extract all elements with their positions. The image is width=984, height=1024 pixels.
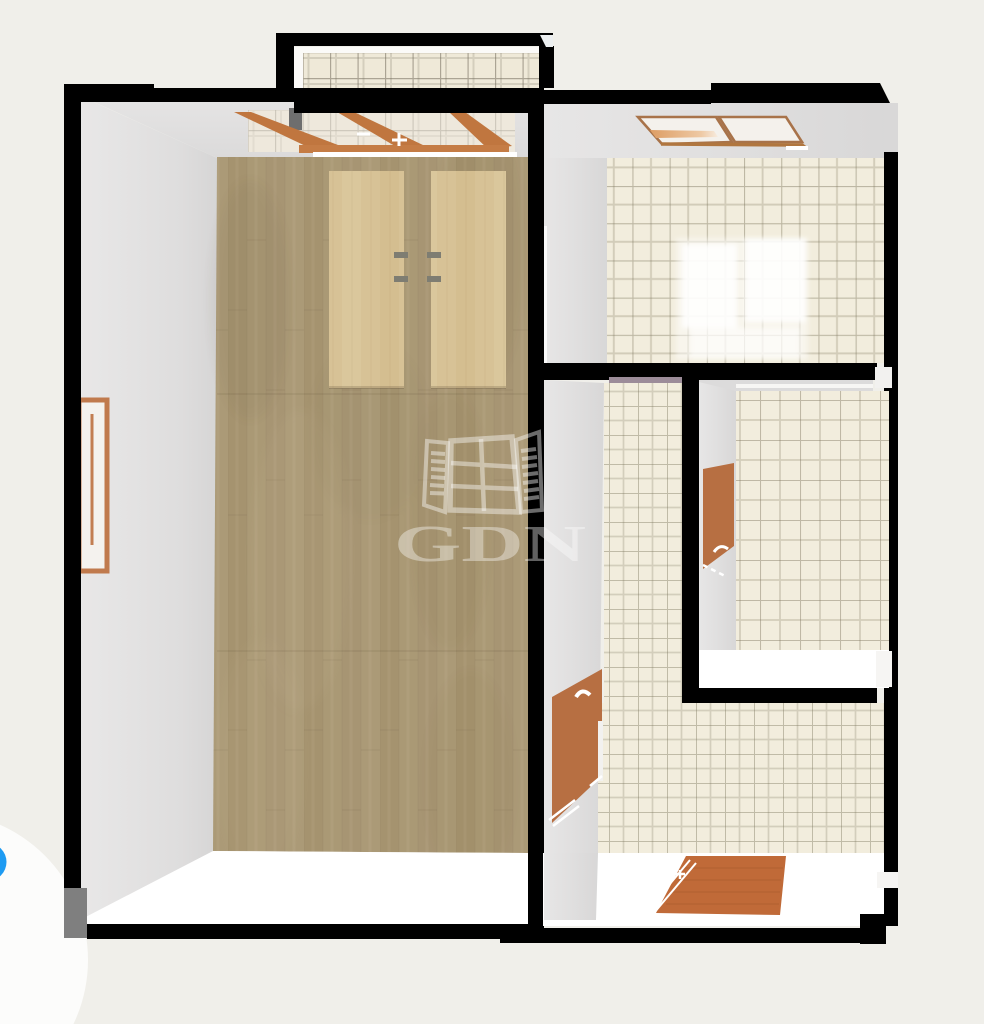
svg-text:GDN: GDN	[394, 516, 586, 573]
